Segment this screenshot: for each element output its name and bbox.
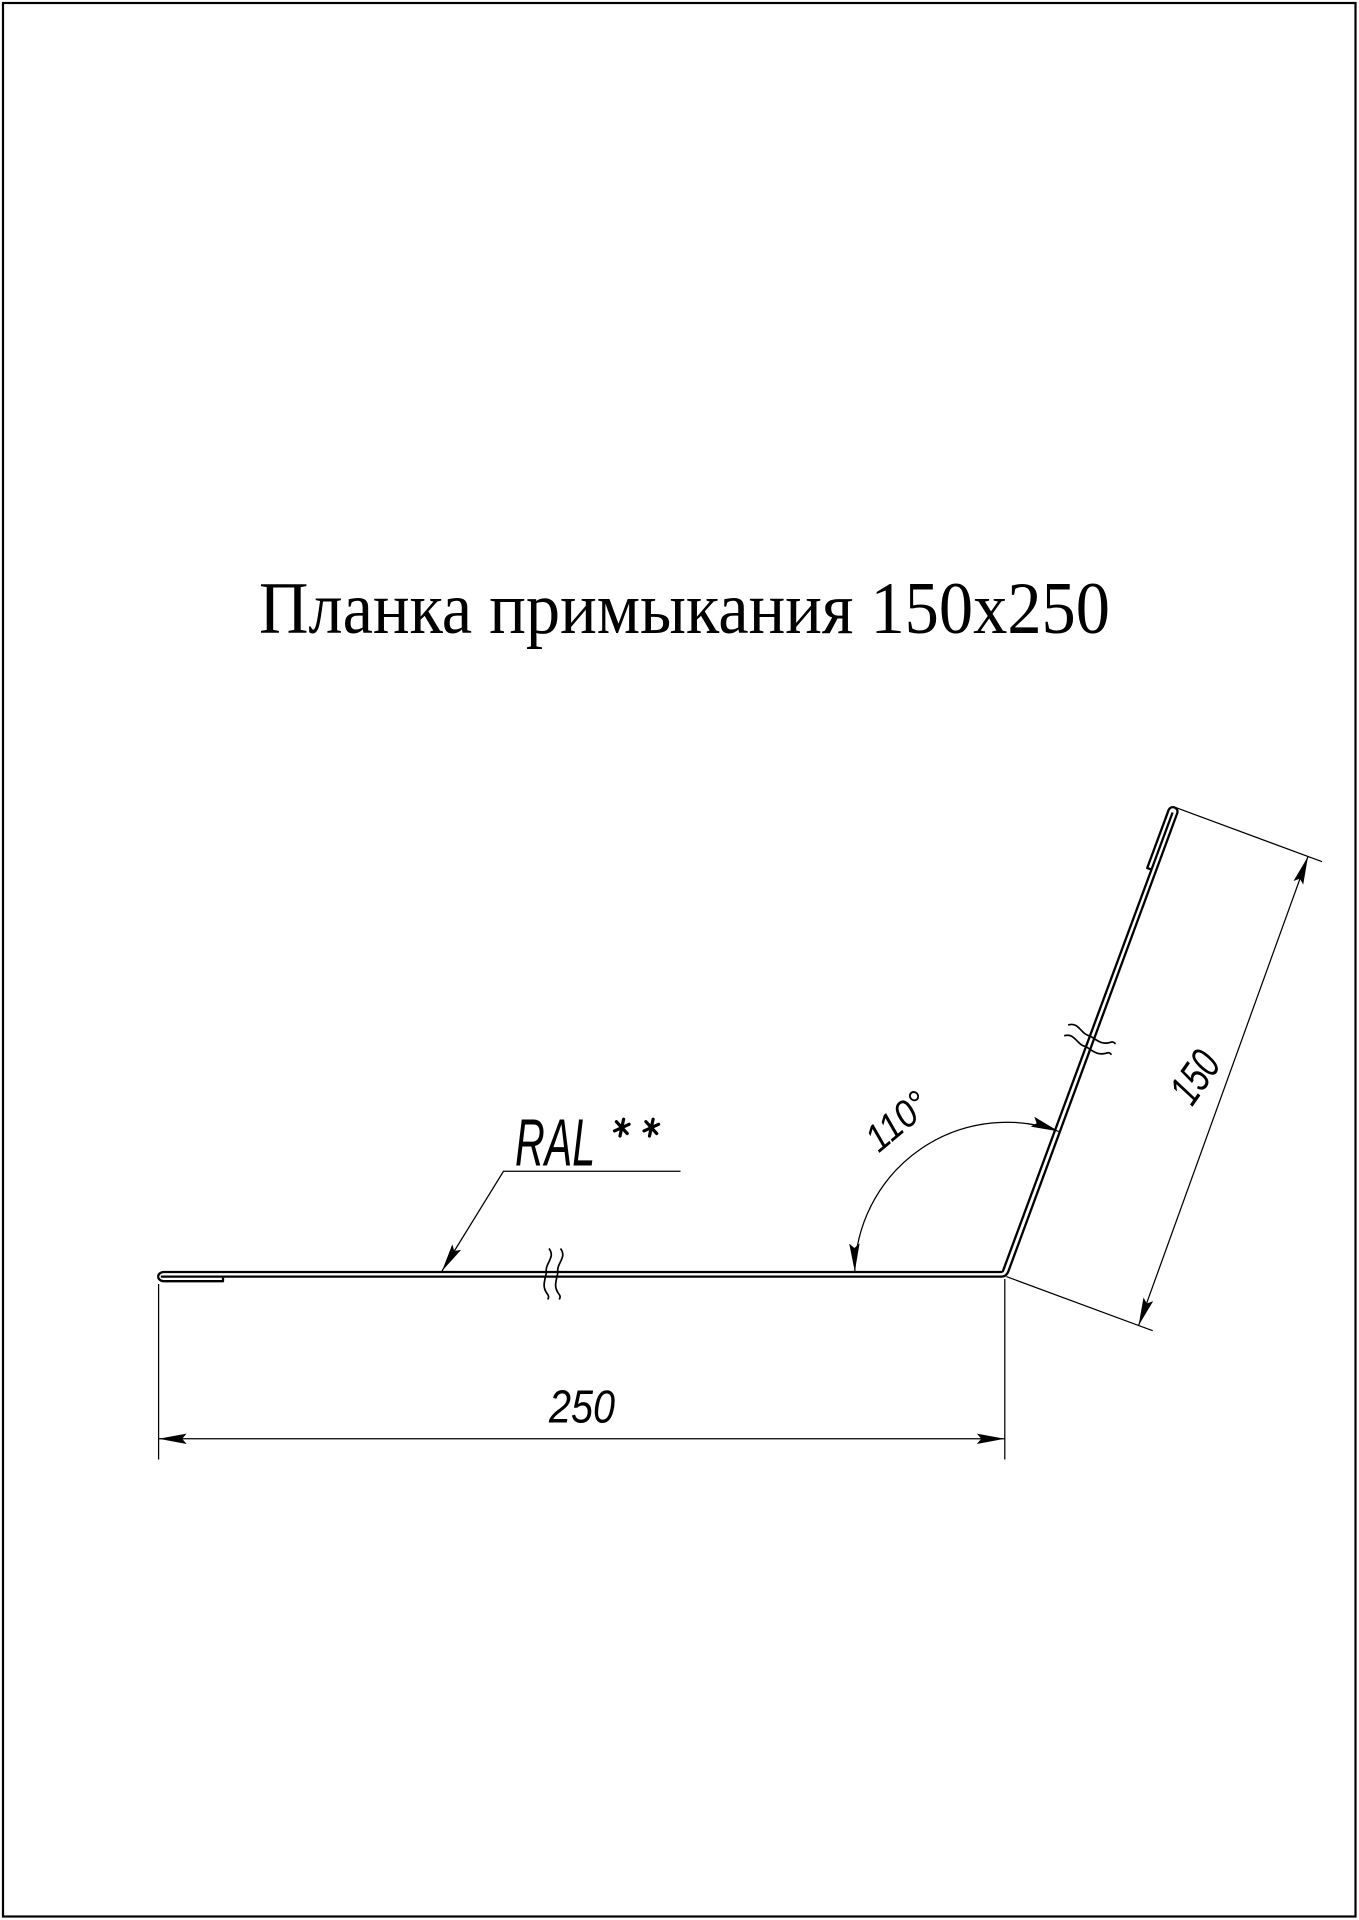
- svg-text:Планка примыкания 150х250: Планка примыкания 150х250: [259, 568, 1110, 650]
- svg-text:RAL: RAL: [515, 1105, 595, 1180]
- svg-text:250: 250: [548, 1382, 615, 1433]
